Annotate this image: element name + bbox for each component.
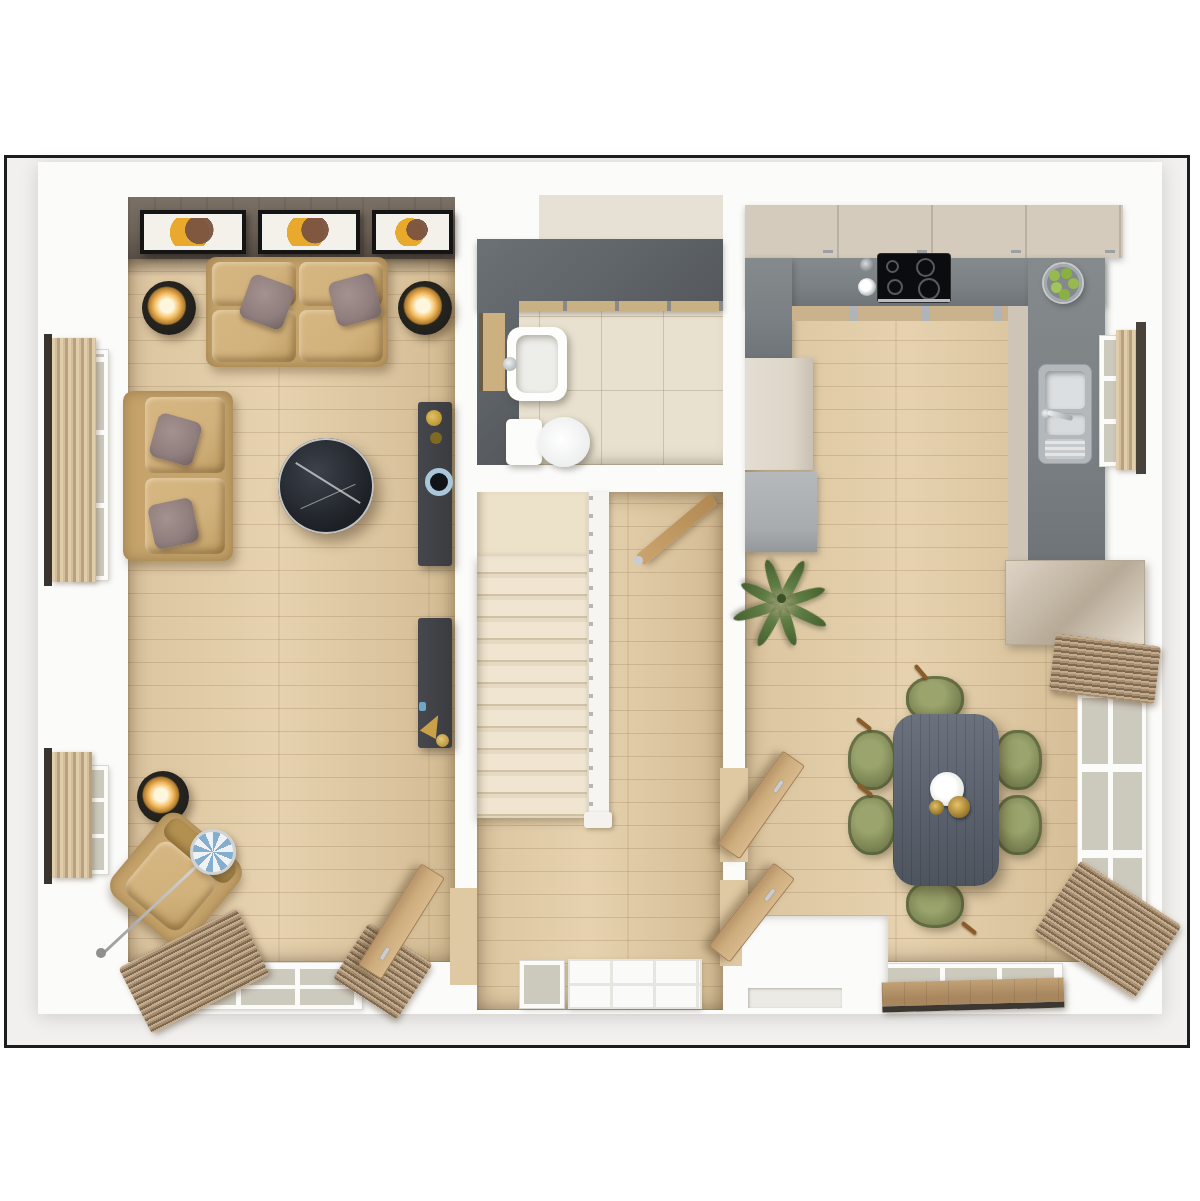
curtain-panel-right-wall xyxy=(1116,330,1138,470)
spice-jar xyxy=(858,278,876,296)
gloss-sideboard xyxy=(1005,560,1145,645)
apple xyxy=(1061,268,1072,279)
media-unit-lower xyxy=(418,618,452,748)
toilet-bowl xyxy=(538,417,590,467)
floor-lamp-right xyxy=(398,281,452,335)
kitchen-upper-cabinets xyxy=(745,205,1123,258)
hob xyxy=(878,254,950,302)
arc-lamp-shade xyxy=(190,829,236,875)
dining-chair-right-1 xyxy=(994,730,1042,790)
apple xyxy=(1068,278,1079,289)
fruit-bowl xyxy=(1042,262,1084,304)
spice-jar xyxy=(860,258,874,272)
cabinet-handles xyxy=(745,250,1123,253)
brass-decor xyxy=(426,410,442,426)
toilet-cistern xyxy=(506,419,542,465)
curtain-panel xyxy=(52,338,96,582)
stairs-landing xyxy=(477,492,587,556)
wall-art-3 xyxy=(380,218,445,246)
hob-burner xyxy=(916,258,935,277)
wall-art-frame-1 xyxy=(140,210,246,254)
blue-decor xyxy=(419,702,426,711)
curtain-rod-right-wall xyxy=(1136,322,1146,474)
dining-chair-right-2 xyxy=(994,795,1042,855)
wc-hall-wall xyxy=(477,465,723,492)
dining-chair-bottom xyxy=(906,880,964,928)
table-candle xyxy=(929,800,944,815)
base-cabinet-fronts-right xyxy=(1008,306,1028,562)
dining-chair-left-2 xyxy=(848,795,896,855)
floor-lamp-left xyxy=(142,281,196,335)
wall-art-2 xyxy=(266,218,352,246)
wall-art-frame-2 xyxy=(258,210,360,254)
apple xyxy=(1049,270,1060,281)
speaker-ring xyxy=(425,468,453,496)
throw-pillow xyxy=(147,497,200,550)
table-gold-bottle xyxy=(948,796,970,818)
hob-burner xyxy=(886,260,899,273)
banister-newel xyxy=(584,812,612,828)
stairs-steps xyxy=(477,556,587,818)
floorplan-screenshot xyxy=(0,0,1200,1201)
wall-art-1 xyxy=(148,218,238,246)
basin-bowl xyxy=(516,335,558,393)
palm-core xyxy=(777,594,786,603)
sink-basin xyxy=(1045,371,1085,409)
wall-art-frame-3 xyxy=(372,210,453,254)
desk-fan-head xyxy=(436,734,449,747)
porch-wall-block xyxy=(742,916,888,1012)
door-handle xyxy=(764,888,776,901)
front-door-sidelight xyxy=(520,961,564,1008)
coffee-table xyxy=(278,438,374,534)
front-door xyxy=(568,959,702,1009)
sofa-three-seat xyxy=(206,257,388,367)
wc-wall-ledge xyxy=(479,313,505,391)
wc-basin xyxy=(507,327,567,401)
worktop-left xyxy=(745,258,792,358)
sofa-two-seat xyxy=(123,391,233,561)
media-unit-upper xyxy=(418,402,452,566)
dining-chair-left-1 xyxy=(848,730,896,790)
banister-balusters xyxy=(589,496,593,814)
palm-plant xyxy=(741,552,821,644)
curtain-rod xyxy=(44,748,52,884)
gray-appliance-unit xyxy=(745,472,817,552)
door-handle xyxy=(379,947,390,961)
sidelight-glass xyxy=(524,965,560,1004)
basin-tap xyxy=(503,357,517,371)
curtain-panel xyxy=(52,752,92,878)
sink-drainer xyxy=(1045,439,1085,459)
hob-burner xyxy=(887,279,903,295)
kitchen-sink xyxy=(1038,364,1092,464)
tall-cream-unit xyxy=(745,358,813,470)
brass-decor xyxy=(430,432,442,444)
curtain-rod xyxy=(44,334,52,586)
hob-trim xyxy=(878,299,950,302)
wc-wall-notch xyxy=(477,195,539,239)
apple xyxy=(1059,289,1070,300)
door-handle xyxy=(773,780,784,794)
dining-table xyxy=(893,714,999,886)
marble-vein xyxy=(295,462,361,504)
base-cabinet-fronts xyxy=(792,306,1008,321)
arc-lamp-base xyxy=(96,948,106,958)
living-doorway-threshold xyxy=(450,888,480,985)
hob-burner xyxy=(918,278,940,300)
porch-recess xyxy=(748,988,842,1008)
stairs-banister xyxy=(587,492,609,818)
window-canopy-shelf xyxy=(882,978,1065,1013)
door-hinge-bracket xyxy=(634,556,643,565)
wc-vanity-shelf xyxy=(519,301,723,311)
